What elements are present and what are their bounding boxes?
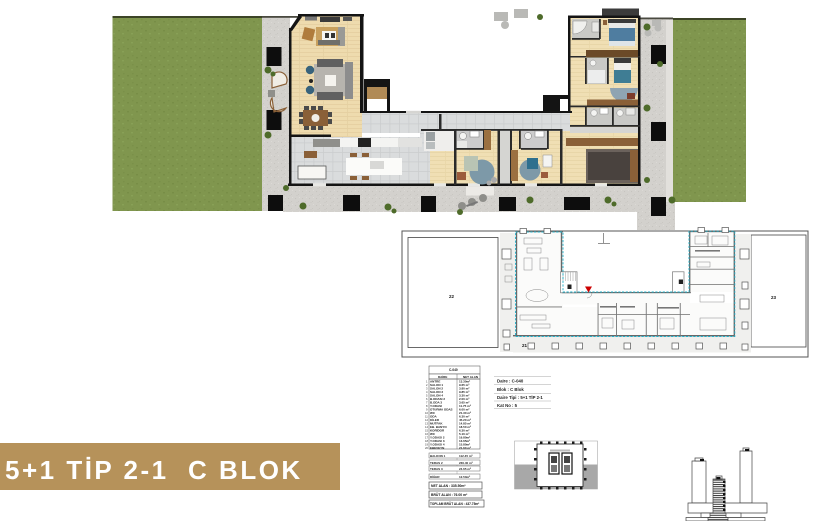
svg-text:14: 14 <box>425 425 428 429</box>
svg-text:7: 7 <box>426 400 428 404</box>
svg-text:18: 18 <box>425 439 428 443</box>
svg-text:23: 23 <box>771 295 777 300</box>
svg-text:TERAS 3: TERAS 3 <box>430 467 443 471</box>
svg-text:21: 21 <box>522 343 528 348</box>
svg-text:12: 12 <box>425 418 428 422</box>
svg-text:TOPLAM BRÜT ALAN : 437.75m²: TOPLAM BRÜT ALAN : 437.75m² <box>430 501 479 506</box>
svg-text:16: 16 <box>425 432 428 436</box>
svg-text:22: 22 <box>449 294 455 299</box>
svg-text:3: 3 <box>426 386 428 390</box>
svg-text:Kat No : 5: Kat No : 5 <box>497 403 518 408</box>
svg-text:TERAS 2: TERAS 2 <box>430 461 443 465</box>
svg-text:19: 19 <box>425 442 428 446</box>
svg-text:8: 8 <box>426 404 428 408</box>
svg-text:NET ALAN: NET ALAN <box>463 375 478 379</box>
svg-text:Daire Tipi : 5+1 TİP 2-1: Daire Tipi : 5+1 TİP 2-1 <box>497 395 543 400</box>
svg-text:12.50m²: 12.50m² <box>459 475 470 479</box>
svg-text:4: 4 <box>426 390 428 394</box>
svg-text:Daire : C-040: Daire : C-040 <box>497 379 524 384</box>
svg-text:20: 20 <box>425 446 428 450</box>
svg-text:21.60 m²: 21.60 m² <box>459 446 471 450</box>
svg-text:24.65 m²: 24.65 m² <box>459 467 471 471</box>
svg-text:EBEVEYN: EBEVEYN <box>430 446 444 450</box>
svg-text:DAİRE: DAİRE <box>438 374 447 379</box>
svg-text:11: 11 <box>425 414 428 418</box>
svg-text:BALKON 1: BALKON 1 <box>430 454 446 458</box>
svg-text:17: 17 <box>425 435 428 439</box>
svg-text:2: 2 <box>426 383 428 387</box>
svg-text:13: 13 <box>425 421 428 425</box>
svg-text:NET ALAN : 335.50m²: NET ALAN : 335.50m² <box>431 484 466 488</box>
svg-text:112.45 m²: 112.45 m² <box>459 454 473 458</box>
svg-text:BRÜT ALAN : 76.00 m²: BRÜT ALAN : 76.00 m² <box>431 492 468 497</box>
svg-text:6: 6 <box>426 397 428 401</box>
svg-text:10: 10 <box>425 411 428 415</box>
svg-text:15: 15 <box>425 428 428 432</box>
svg-text:230.40 m²: 230.40 m² <box>459 461 473 465</box>
svg-text:5: 5 <box>426 393 428 397</box>
svg-text:C-040: C-040 <box>449 368 458 372</box>
svg-text:Blok : C Blok: Blok : C Blok <box>497 387 524 392</box>
svg-text:9: 9 <box>426 407 428 411</box>
svg-text:DİĞER: DİĞER <box>430 474 440 479</box>
svg-text:1: 1 <box>426 379 428 383</box>
